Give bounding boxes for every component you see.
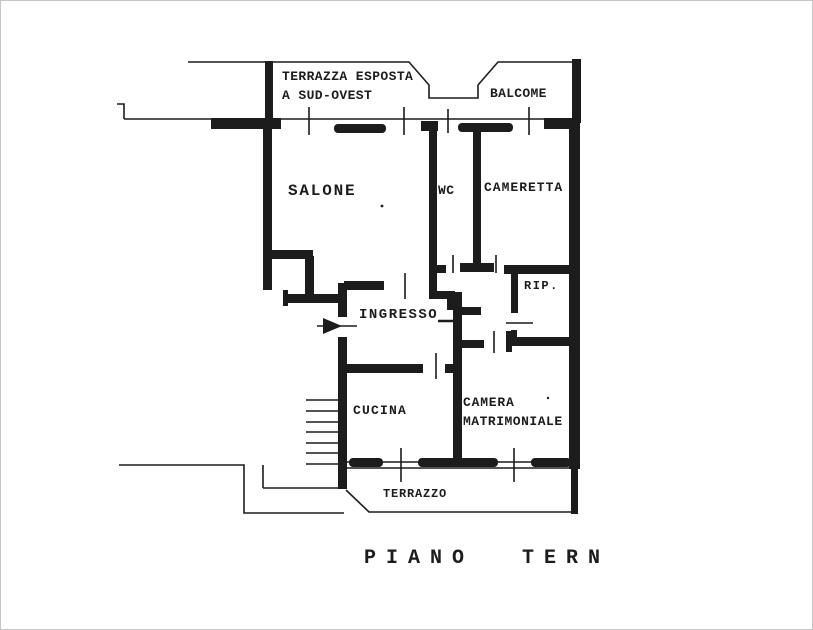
floor-caption: PIANO TERN (364, 549, 610, 569)
wall-rip-bottom (507, 337, 574, 346)
floorplan-page: TERRAZZA ESPOSTA A SUD-OVEST BALCOME SAL… (0, 0, 813, 630)
room-label-camera-line2: MATRIMONIALE (463, 415, 563, 428)
window-bar-cameretta-top (458, 123, 513, 132)
left-hook-line (117, 104, 124, 119)
wall-rip-bottom-end-cap (506, 331, 512, 352)
walkway-outline (119, 465, 344, 513)
room-label-camera-line1: CAMERA (463, 396, 515, 409)
window-bar-cucina-bottom (349, 458, 383, 467)
room-label-balcone: BALCOME (490, 87, 547, 100)
wall-rip-top (504, 265, 574, 274)
room-label-ingresso: INGRESSO (359, 308, 438, 322)
wall-salone-jog-bottom (285, 294, 343, 303)
scan-speck (381, 205, 384, 208)
wall-entry-lower (338, 337, 347, 489)
wall-cucina-top-stub (445, 364, 454, 373)
room-label-ripostiglio: RIP. (524, 280, 559, 292)
window-bar-salone-top (334, 124, 386, 133)
wall-cucina-top (344, 364, 423, 373)
room-label-terrazzo: TERRAZZO (383, 488, 447, 500)
wall-wc-stub (437, 265, 446, 273)
stairs-lines (306, 400, 342, 464)
wall-cameretta-left (473, 129, 481, 264)
scan-speck (547, 397, 549, 399)
window-bar-camera-bottom-right (531, 458, 571, 467)
terrazzo-outline (346, 490, 578, 512)
room-label-cameretta: CAMERETTA (484, 181, 563, 194)
room-label-salone: SALONE (288, 183, 356, 199)
entrance-arrow-icon (323, 318, 342, 334)
wall-cameretta-end-cap (460, 263, 494, 272)
room-label-wc: WC (438, 184, 455, 197)
wall-ingresso-top-bar (344, 281, 384, 290)
wall-camera-door-cap (453, 340, 484, 348)
wall-camera-left (453, 292, 462, 464)
wall-terrace-divider (265, 61, 273, 122)
room-label-terrazza-line2: A SUD-OVEST (282, 89, 372, 102)
wall-rip-left (511, 273, 518, 313)
wall-balcony-right-edge (572, 59, 581, 123)
room-label-cucina: CUCINA (353, 404, 407, 417)
wall-terrazzo-right-edge (571, 468, 578, 514)
wall-wc-hook-horizontal (429, 291, 455, 299)
room-label-terrazza-line1: TERRAZZA ESPOSTA (282, 70, 413, 83)
wall-wc-left (429, 121, 437, 299)
wall-corridor-stub (462, 307, 481, 315)
wall-right-exterior (569, 119, 580, 469)
wall-salone-left (263, 120, 272, 290)
wall-jog-end-cap (283, 290, 288, 306)
